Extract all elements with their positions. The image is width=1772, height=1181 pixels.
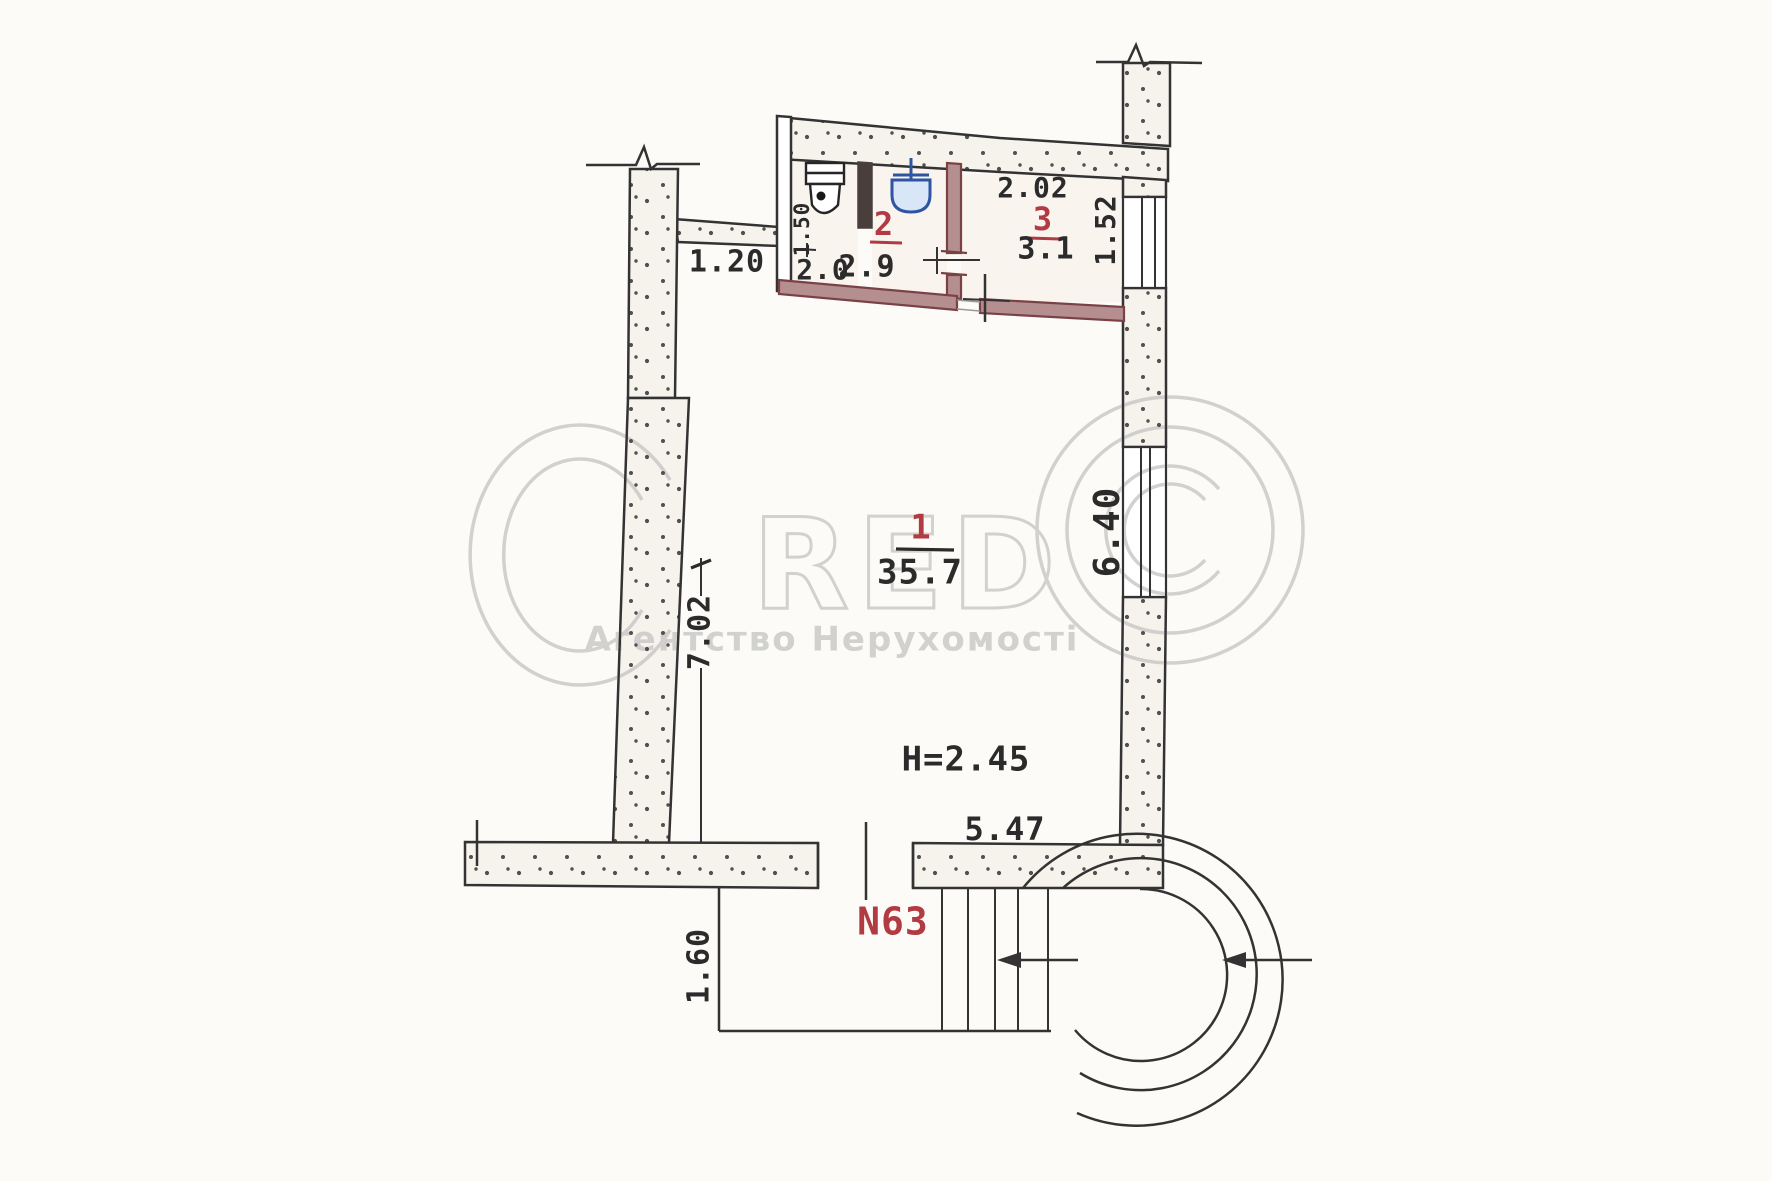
partition-room3-bottom [980, 299, 1124, 321]
dim-wc-depth: 1.50 [790, 202, 814, 257]
wall-right-a [1123, 177, 1166, 197]
direction-arrow-1-head [997, 952, 1021, 968]
wall-right-b [1123, 288, 1166, 447]
dim-corridor-width: 1.20 [689, 245, 765, 280]
watermark-tagline: Агентство Нерухомості [585, 620, 1080, 660]
toilet-bowl [810, 184, 840, 213]
threshold-line-2 [957, 309, 980, 311]
wall-bathblock-left [777, 116, 791, 293]
wall-right-c [1120, 597, 1166, 845]
wall-bottom-right [913, 843, 1163, 888]
watermark-logo: RED Агентство Нерухомості [470, 397, 1303, 685]
dim-room3-depth: 1.52 [1089, 194, 1122, 265]
dim-ceiling-height: H=2.45 [902, 740, 1031, 780]
break-line-top-right [1096, 45, 1202, 66]
wall-left-upper [628, 169, 678, 398]
window-room3 [1123, 197, 1166, 288]
unit-number-label: N63 [857, 900, 929, 944]
sink-basin [892, 180, 930, 212]
room-2-number: 2 [874, 205, 894, 243]
dim-room1-width: 5.47 [964, 810, 1045, 848]
watermark-red-text: RED [752, 491, 1064, 638]
room-2-underline [870, 242, 902, 243]
partition-room2-room3-upper [947, 163, 961, 253]
break-line-top-left [586, 147, 700, 169]
floor-plan-canvas: 1.20 2.0 1.50 2 2.9 2.02 3 3.1 1.52 1 35… [0, 0, 1772, 1181]
stair-arc-inner [1075, 889, 1227, 1061]
dim-porch-depth: 1.60 [682, 928, 717, 1004]
wall-stub-top-right [1123, 63, 1170, 146]
room-2-area: 2.9 [838, 250, 895, 285]
room-3-area: 3.1 [1017, 232, 1074, 267]
partition-wc-room2 [858, 162, 872, 228]
wall-bottom-left [465, 842, 818, 888]
wall-corridor-top [674, 219, 779, 246]
toilet-drain [817, 192, 826, 201]
floor-plan-scan: 1.20 2.0 1.50 2 2.9 2.02 3 3.1 1.52 1 35… [0, 0, 1772, 1181]
